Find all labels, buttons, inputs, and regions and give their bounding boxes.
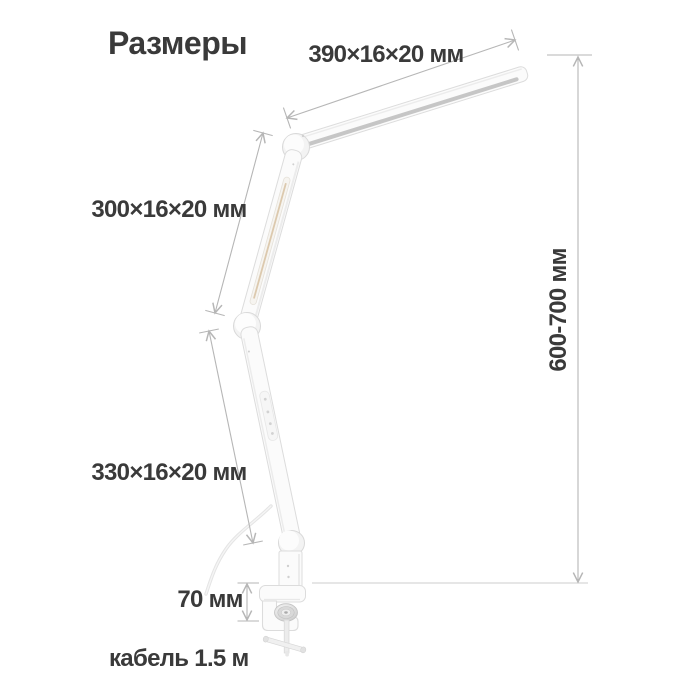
lower-arm: [240, 325, 301, 542]
lamp-head: [284, 65, 529, 154]
dim-upper-arm: 300×16×20 мм: [91, 130, 272, 315]
led-diffuser-strip: [302, 77, 519, 148]
power-cable-highlight: [206, 506, 271, 594]
power-cable: [206, 506, 271, 594]
page-title: Размеры: [108, 25, 247, 61]
clamp-screw-tip: [285, 651, 289, 657]
dim-clamp-label: 70 мм: [177, 586, 242, 613]
clamp-knob: [275, 604, 298, 622]
base-post: [279, 551, 302, 589]
dim-upper-arm-label: 300×16×20 мм: [91, 196, 246, 223]
upper-arm: [238, 148, 303, 328]
joint-screw-dot: [302, 135, 304, 137]
dim-lower-arm: 330×16×20 мм: [91, 329, 262, 545]
dim-head-label: 390×16×20 мм: [308, 41, 463, 68]
lamp-dimensions-diagram: 390×16×20 мм 300×16×20 мм 330×16×20 мм 6…: [0, 0, 700, 700]
dim-height-label: 600-700 мм: [545, 248, 572, 371]
dim-height: 600-700 мм: [545, 55, 592, 582]
dim-lower-arm-label: 330×16×20 мм: [91, 459, 246, 486]
diagram-canvas: 390×16×20 мм 300×16×20 мм 330×16×20 мм 6…: [0, 0, 700, 700]
clamp: [260, 586, 307, 657]
cable-length-label: кабель 1.5 м: [109, 645, 249, 672]
dim-clamp: 70 мм: [177, 583, 259, 621]
led-channel-line: [253, 183, 287, 299]
